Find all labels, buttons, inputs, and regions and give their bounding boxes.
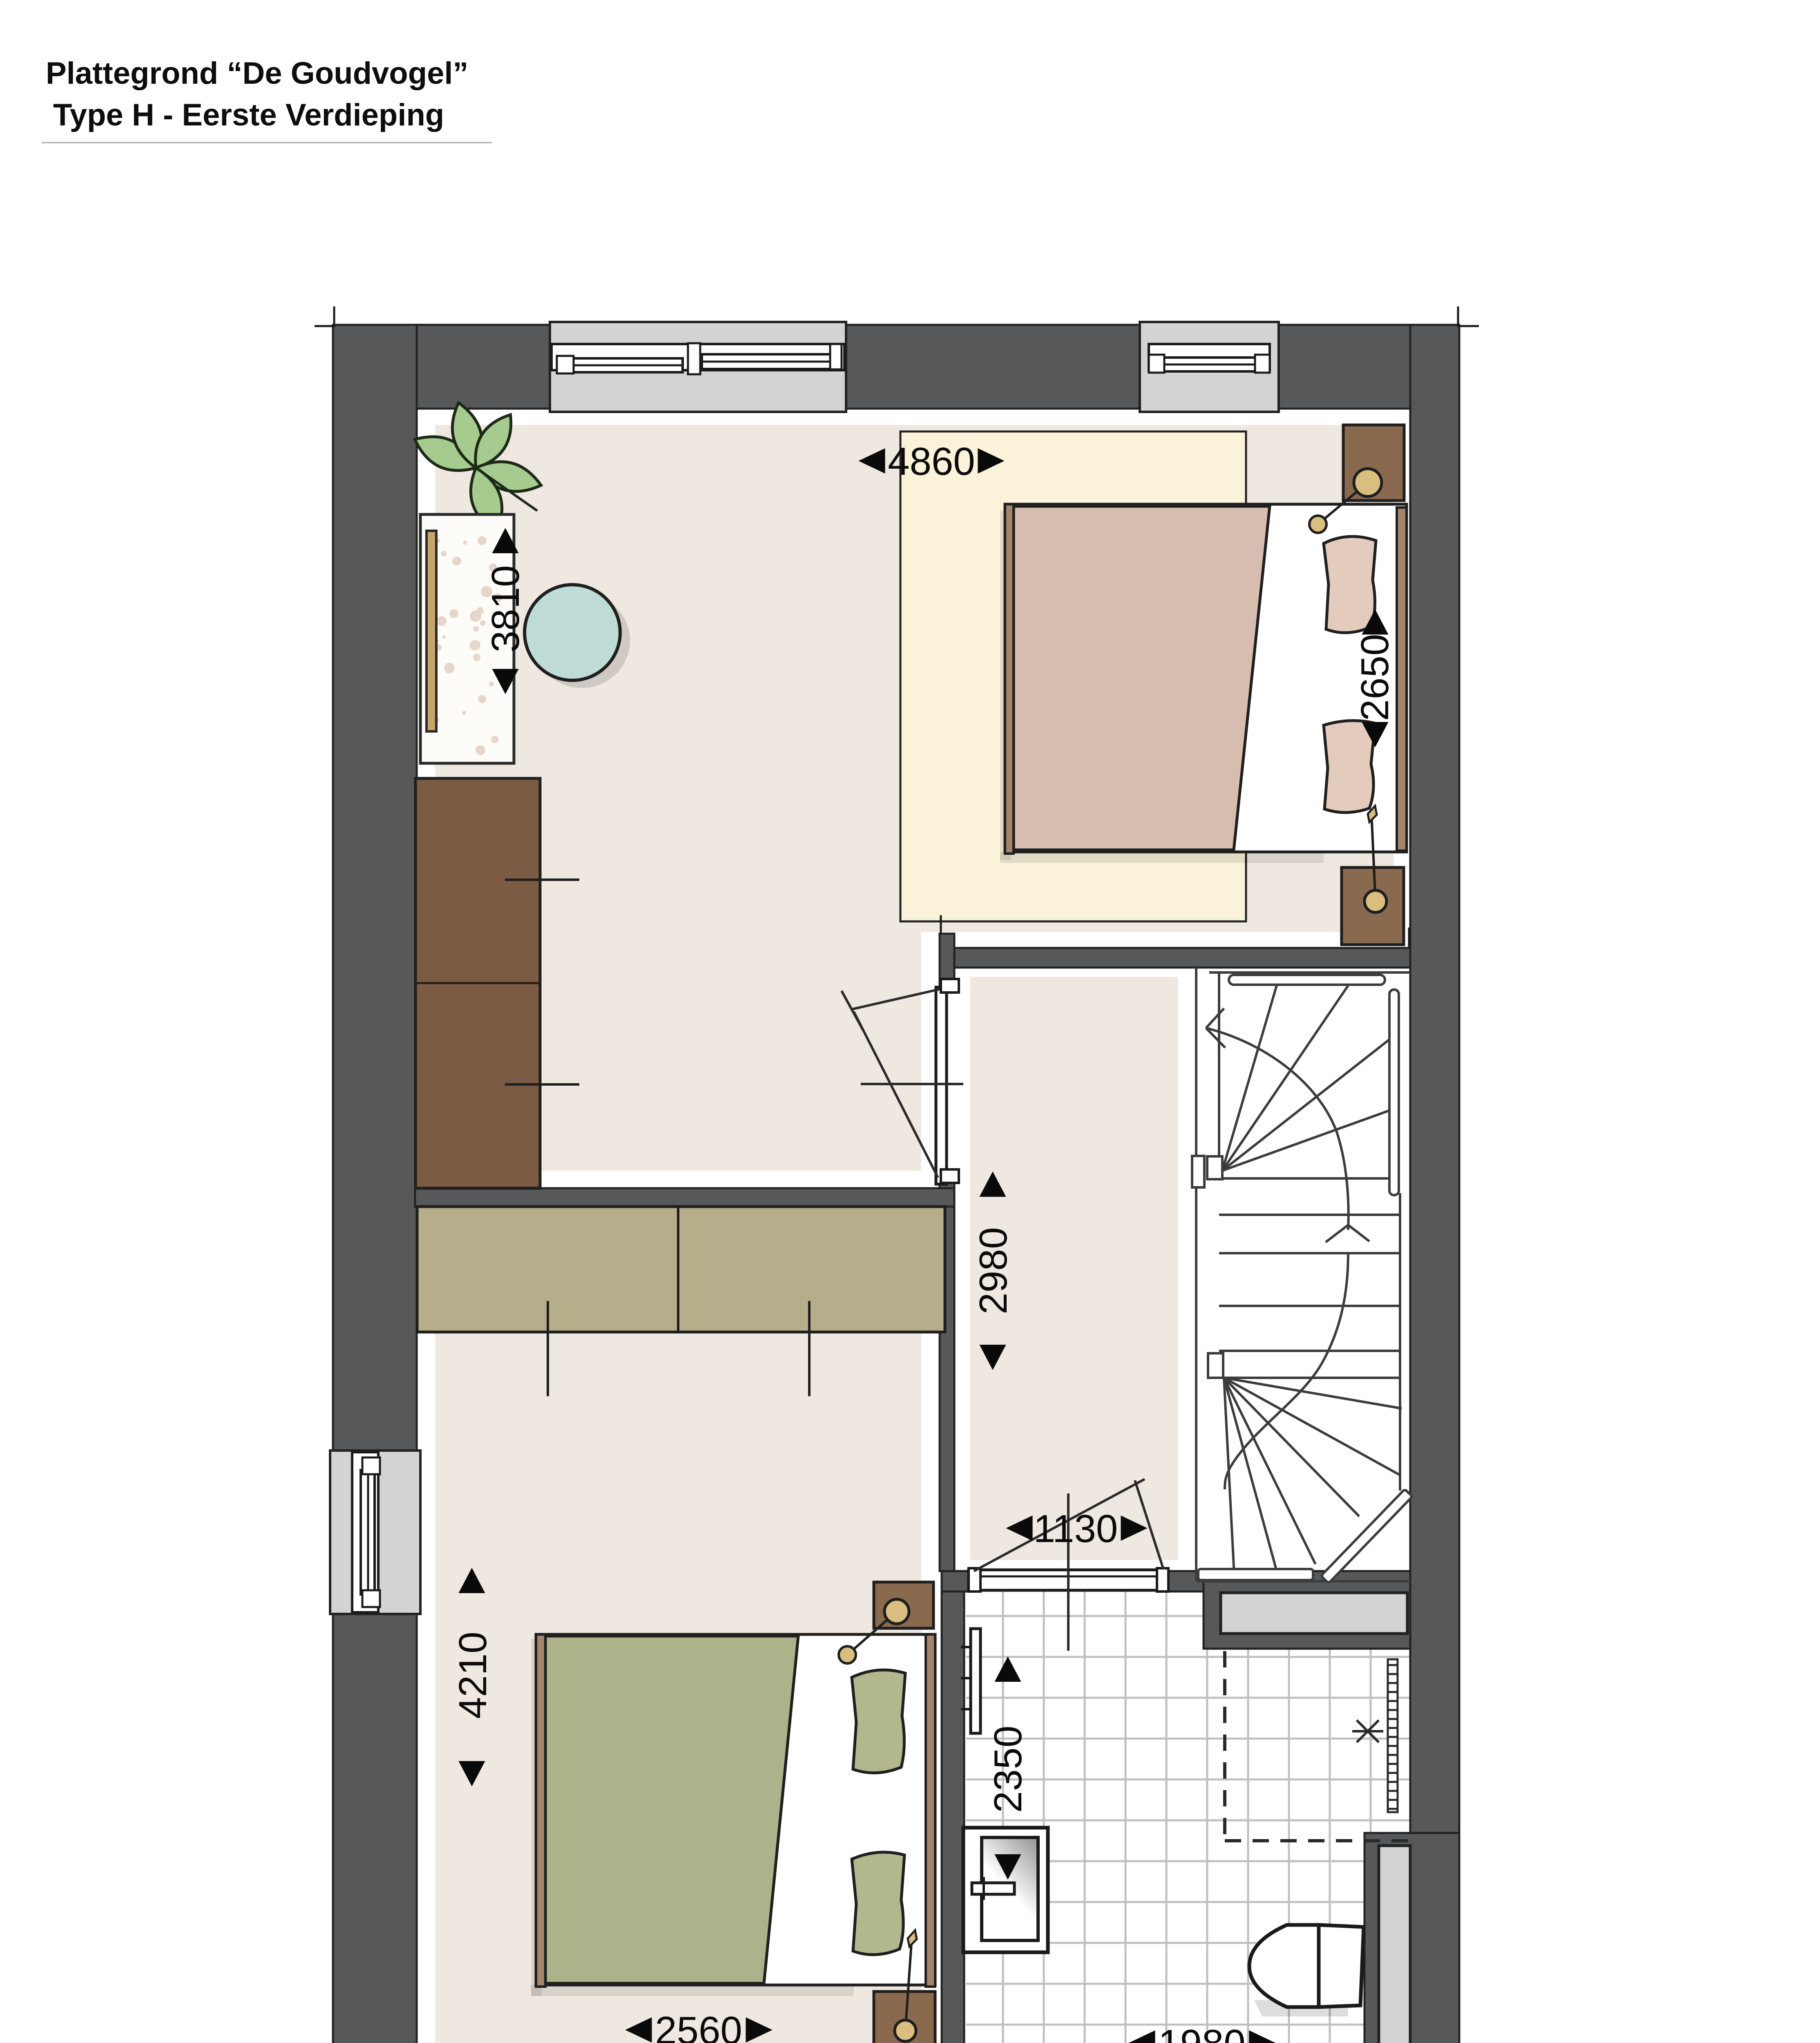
svg-text:2560: 2560 xyxy=(655,2009,742,2043)
svg-text:2650: 2650 xyxy=(1353,634,1397,721)
svg-text:2350: 2350 xyxy=(986,1726,1030,1813)
svg-text:1130: 1130 xyxy=(1034,1507,1118,1551)
svg-text:1980: 1980 xyxy=(1158,2022,1246,2043)
svg-text:Plattegrond “De Goudvogel”: Plattegrond “De Goudvogel” xyxy=(46,56,469,91)
svg-text:4210: 4210 xyxy=(451,1632,495,1719)
svg-text:4860: 4860 xyxy=(888,440,975,483)
svg-text:Type H - Eerste Verdieping: Type H - Eerste Verdieping xyxy=(53,98,444,132)
svg-text:3810: 3810 xyxy=(484,565,527,653)
svg-text:2980: 2980 xyxy=(971,1227,1015,1314)
